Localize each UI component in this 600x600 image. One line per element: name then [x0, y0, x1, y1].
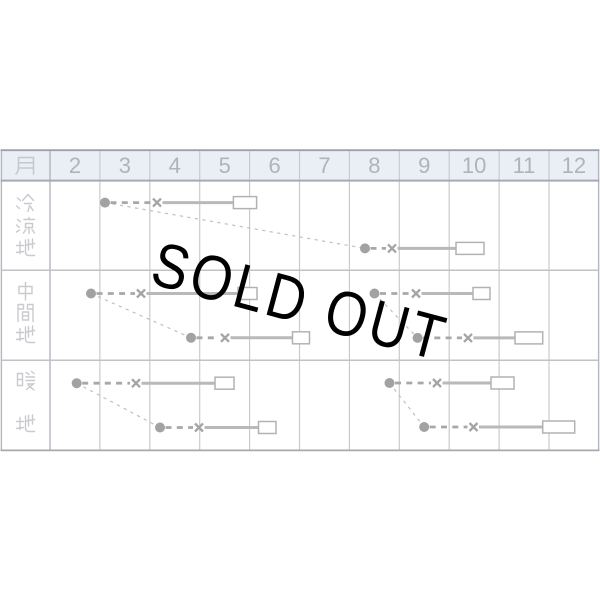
svg-text:11: 11: [513, 153, 536, 178]
svg-text:8: 8: [368, 153, 380, 178]
svg-text:12: 12: [562, 153, 586, 178]
svg-text:3: 3: [119, 153, 131, 178]
svg-text:7: 7: [318, 153, 330, 178]
svg-text:4: 4: [169, 153, 181, 178]
svg-text:5: 5: [219, 153, 231, 178]
svg-text:2: 2: [69, 153, 81, 178]
svg-text:9: 9: [418, 153, 430, 178]
svg-text:6: 6: [268, 153, 280, 178]
svg-text:10: 10: [462, 153, 486, 178]
